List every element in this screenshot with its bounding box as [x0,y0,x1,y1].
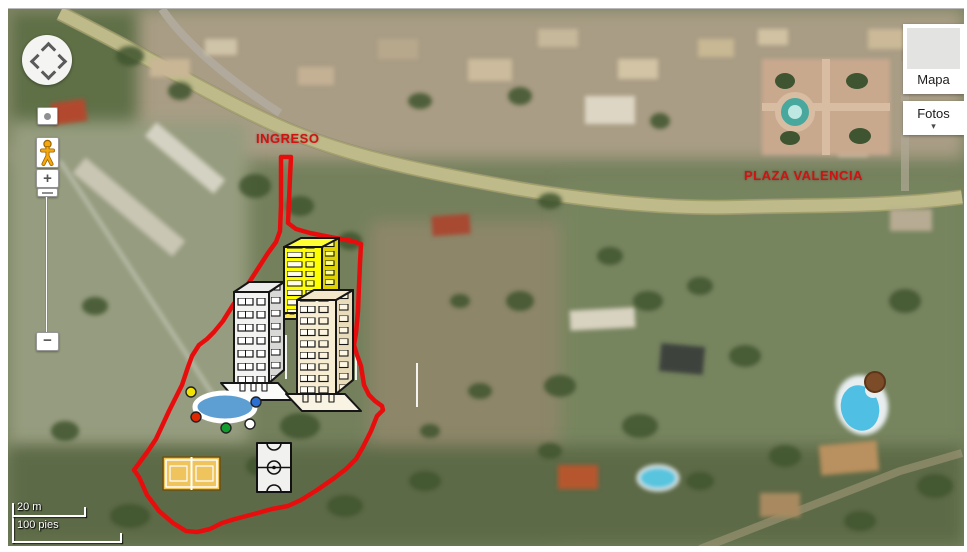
scale-metric-label: 20 m [17,501,41,513]
pan-left-arrow-icon[interactable] [30,54,46,70]
map-thumbnail [907,28,960,69]
soccer-field [257,443,291,492]
scale-metric-tick [84,507,86,517]
scale-imperial-tick [120,533,122,543]
scale-bar: 20 m 100 pies [10,493,140,543]
pool [195,393,255,421]
scale-imperial-bar [12,541,122,543]
entrance-label: INGRESO [256,131,319,146]
scale-imperial-label: 100 pies [17,519,59,531]
pan-up-arrow-icon[interactable] [41,42,57,58]
mapa-button-label: Mapa [903,72,964,87]
pan-down-arrow-icon[interactable] [41,65,57,81]
zoom-out-button[interactable]: − [36,332,59,351]
scale-metric-bar [12,515,86,517]
zoom-in-button[interactable]: + [36,169,59,188]
map-image [8,9,964,546]
map-canvas[interactable]: INGRESO PLAZA VALENCIA + − Mapa Fotos ▾ … [8,8,964,546]
scale-left-tick [12,503,14,543]
satellite-imagery [8,9,964,546]
pan-right-arrow-icon[interactable] [52,54,68,70]
fotos-button-label: Fotos [903,106,964,121]
map-type-mapa-button[interactable]: Mapa [903,24,964,94]
plaza-park [762,59,890,155]
handle-dash-icon [42,192,53,194]
zoom-slider-handle[interactable] [37,188,58,197]
street-view-pegman[interactable] [36,137,59,168]
tennis-courts [163,457,220,490]
pan-control[interactable] [22,35,72,85]
chevron-down-icon[interactable]: ▾ [903,121,964,132]
pegman-icon [37,138,58,167]
zoom-slider-track[interactable] [45,197,48,332]
reset-view-button[interactable] [37,107,58,125]
map-type-fotos-button[interactable]: Fotos ▾ [903,101,964,135]
plaza-valencia-label: PLAZA VALENCIA [744,168,863,183]
dot-icon [44,113,51,120]
